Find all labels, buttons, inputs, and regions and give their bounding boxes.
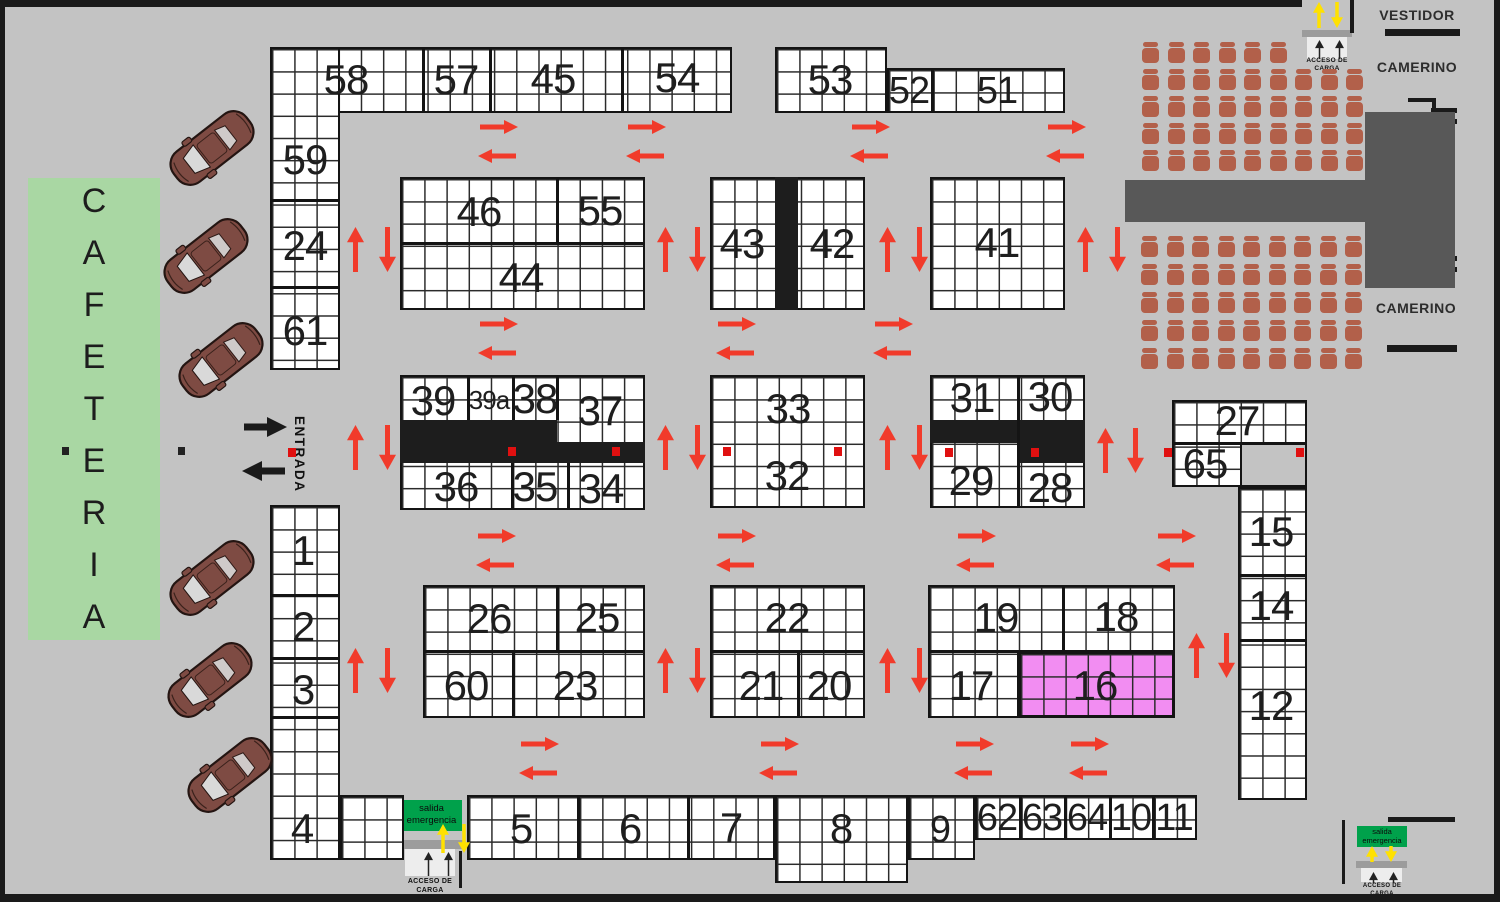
arrow-up-icon <box>347 227 364 272</box>
booth-divider <box>774 795 777 860</box>
arrow-up-icon <box>1097 428 1114 473</box>
arrow-left-icon <box>1046 149 1084 163</box>
chair-icon <box>1192 236 1209 257</box>
booth-divider <box>1017 651 1020 718</box>
wall-block <box>557 442 645 463</box>
chair-icon <box>1218 348 1235 369</box>
arrow-down-icon <box>911 425 928 470</box>
wall-segment <box>0 894 1500 902</box>
chair-icon <box>1192 292 1209 313</box>
arrow-up-icon <box>1188 633 1205 678</box>
booth-label-26: 26 <box>467 598 512 640</box>
cafeteria-letter: A <box>83 598 106 637</box>
pillar-marker-dark <box>62 447 69 455</box>
booth-label-60: 60 <box>444 665 489 707</box>
chair-icon <box>1218 292 1235 313</box>
booth-label-59: 59 <box>283 139 328 181</box>
chair-icon <box>1192 264 1209 285</box>
loading-dock-text-left: ACCESO DE CARGA <box>383 877 477 895</box>
arrow-down-icon <box>689 425 706 470</box>
booth-label-42: 42 <box>810 223 855 265</box>
chair-icon <box>1168 150 1185 171</box>
pillar-marker <box>612 447 620 456</box>
ramp-arrow-up-icon <box>1389 870 1398 881</box>
chair-icon <box>1218 236 1235 257</box>
arrow-down-icon <box>689 648 706 693</box>
chair-icon <box>1219 123 1236 144</box>
cafeteria-letter: T <box>84 390 105 429</box>
booth-label-57: 57 <box>434 59 479 101</box>
booth-label-10: 10 <box>1111 799 1151 837</box>
wall-segment <box>0 0 1302 7</box>
chair-icon <box>1270 123 1287 144</box>
arrow-left-icon <box>519 766 557 780</box>
pillar-marker <box>288 448 296 457</box>
arrow-up-icon <box>347 648 364 693</box>
booth-divider <box>270 657 340 660</box>
chair-icon <box>1345 292 1362 313</box>
booth-label-28: 28 <box>1028 467 1073 509</box>
chair-icon <box>1244 69 1261 90</box>
booth-divider <box>556 585 559 651</box>
booth-divider <box>621 47 624 113</box>
booth-label-37: 37 <box>578 390 623 432</box>
chair-icon <box>1270 42 1287 63</box>
booth-label-38: 38 <box>513 378 558 420</box>
cafeteria-letter: A <box>83 234 106 273</box>
chair-icon <box>1141 348 1158 369</box>
arrow-up-icon <box>657 648 674 693</box>
arrow-up-icon <box>657 425 674 470</box>
chair-icon <box>1243 264 1260 285</box>
arrow-down-icon <box>1127 428 1144 473</box>
booth-divider <box>928 650 1175 653</box>
arrow-left-icon <box>850 149 888 163</box>
arrow-right-icon <box>1048 120 1086 134</box>
booth-label-63: 63 <box>1022 799 1062 837</box>
exit-arrow-down-icon <box>1331 2 1343 28</box>
booth-label-12: 12 <box>1249 685 1294 727</box>
emergency-exit-right-line1: salida <box>1357 827 1407 836</box>
chair-icon <box>1320 320 1337 341</box>
chair-icon <box>1167 236 1184 257</box>
arrow-left-icon <box>956 558 994 572</box>
booth-label-41: 41 <box>975 222 1020 264</box>
ramp-arrow-up-icon <box>1335 40 1344 59</box>
chair-icon <box>1270 96 1287 117</box>
booth-divider <box>1152 795 1155 840</box>
chair-icon <box>1321 96 1338 117</box>
booth-label-20: 20 <box>807 665 852 707</box>
booth-divider <box>687 795 690 860</box>
loading-dock-bar-right <box>1356 861 1407 868</box>
arrow-left-icon <box>626 149 664 163</box>
chair-icon <box>1142 69 1159 90</box>
booth-label-6: 6 <box>619 808 641 850</box>
chair-icon <box>1321 123 1338 144</box>
exhibition-floor-plan: CAFETERIA ENTRADA VESTIDOR CAMERINO CAME… <box>0 0 1500 902</box>
chair-icon <box>1193 123 1210 144</box>
arrow-left-icon <box>1156 558 1194 572</box>
booth-divider <box>270 199 340 202</box>
booth-label-18: 18 <box>1094 596 1139 638</box>
arrow-right-icon <box>1071 737 1109 751</box>
arrow-left-icon <box>954 766 992 780</box>
loading-dock-bar-top <box>1302 30 1352 37</box>
ramp-arrow-up-icon <box>444 852 453 876</box>
chair-icon <box>1345 320 1362 341</box>
chair-icon <box>1193 42 1210 63</box>
booth-divider <box>512 651 515 718</box>
chair-icon <box>1192 348 1209 369</box>
booth-grid-block <box>340 795 404 860</box>
arrow-right-icon <box>761 737 799 751</box>
loading-dock-left-line1: ACCESO DE <box>383 877 477 886</box>
wall-segment <box>1387 345 1457 352</box>
chair-icon <box>1244 42 1261 63</box>
booth-label-16: 16 <box>1073 665 1118 707</box>
booth-divider <box>270 716 340 719</box>
chair-icon <box>1269 320 1286 341</box>
chair-icon <box>1320 348 1337 369</box>
arrow-right-icon <box>958 529 996 543</box>
booth-label-21: 21 <box>739 665 784 707</box>
chair-icon <box>1346 123 1363 144</box>
booth-label-36: 36 <box>434 466 479 508</box>
camerino-top-label: CAMERINO <box>1377 59 1457 75</box>
booth-label-23: 23 <box>553 665 598 707</box>
wall-segment <box>0 0 5 902</box>
chair-icon <box>1294 320 1311 341</box>
booth-divider <box>556 177 559 243</box>
arrow-down-icon <box>379 648 396 693</box>
arrow-down-icon <box>689 227 706 272</box>
chair-icon <box>1168 69 1185 90</box>
booth-label-34: 34 <box>579 468 624 510</box>
arrow-up-icon <box>657 227 674 272</box>
booth-label-44: 44 <box>499 257 544 299</box>
booth-divider <box>907 795 910 860</box>
chair-icon <box>1141 320 1158 341</box>
chair-icon <box>1168 42 1185 63</box>
chair-icon <box>1294 292 1311 313</box>
arrow-right-icon <box>875 317 913 331</box>
chair-icon <box>1269 348 1286 369</box>
loading-dock-bar-left <box>400 840 463 849</box>
chair-icon <box>1320 292 1337 313</box>
booth-label-14: 14 <box>1249 585 1294 627</box>
arrow-left-icon <box>716 346 754 360</box>
booth-divider <box>931 68 934 113</box>
chair-icon <box>1295 150 1312 171</box>
chair-icon <box>1218 320 1235 341</box>
wall-segment <box>1350 0 1354 33</box>
arrow-down-icon <box>1218 633 1235 678</box>
wall-segment <box>1385 29 1460 36</box>
cafeteria-letter: C <box>82 182 107 221</box>
booth-label-2: 2 <box>292 606 314 648</box>
chair-icon <box>1168 96 1185 117</box>
booth-divider <box>710 650 865 653</box>
booth-label-1: 1 <box>292 530 314 572</box>
chair-icon <box>1243 292 1260 313</box>
booth-label-15: 15 <box>1249 511 1294 553</box>
chair-icon <box>1295 123 1312 144</box>
chair-icon <box>1218 264 1235 285</box>
entrance-arrow-left-icon <box>242 461 285 481</box>
chair-icon <box>1321 69 1338 90</box>
emergency-exit-line2: emergencia <box>401 815 462 827</box>
pillar-marker <box>508 447 516 456</box>
arrow-left-icon <box>478 346 516 360</box>
cafeteria-letter: F <box>84 286 105 325</box>
booth-label-58: 58 <box>324 59 369 101</box>
chair-icon <box>1243 320 1260 341</box>
arrow-right-icon <box>480 120 518 134</box>
stage-platform <box>1365 112 1455 288</box>
booth-label-27: 27 <box>1215 400 1260 442</box>
booth-label-24: 24 <box>283 225 328 267</box>
arrow-right-icon <box>478 529 516 543</box>
arrow-left-icon <box>716 558 754 572</box>
chair-icon <box>1142 150 1159 171</box>
car-icon <box>153 208 258 305</box>
booth-divider <box>270 594 340 597</box>
arrow-up-icon <box>879 227 896 272</box>
booth-label-31: 31 <box>950 377 995 419</box>
booth-label-39: 39 <box>411 380 456 422</box>
vestidor-label: VESTIDOR <box>1379 7 1455 23</box>
loading-dock-right-line1: ACCESO DE <box>1347 883 1417 891</box>
booth-label-45: 45 <box>531 58 576 100</box>
booth-divider <box>797 651 800 718</box>
cafeteria-letter: E <box>83 442 106 481</box>
chair-icon <box>1243 236 1260 257</box>
camerino-bottom-label: CAMERINO <box>1376 300 1456 316</box>
chair-icon <box>1193 69 1210 90</box>
booth-divider <box>1238 639 1307 642</box>
car-icon <box>159 100 264 197</box>
chair-icon <box>1244 123 1261 144</box>
chair-icon <box>1168 123 1185 144</box>
arrow-right-icon <box>956 737 994 751</box>
chair-icon <box>1141 264 1158 285</box>
booth-label-39a: 39a <box>469 387 509 413</box>
chair-icon <box>1270 69 1287 90</box>
chair-icon <box>1269 292 1286 313</box>
emergency-exit-line1: salida <box>401 803 462 815</box>
cafeteria-letter: I <box>89 546 98 585</box>
chair-icon <box>1269 236 1286 257</box>
booth-divider <box>423 650 645 653</box>
arrow-up-icon <box>347 425 364 470</box>
booth-divider <box>1062 585 1065 651</box>
arrow-left-icon <box>1069 766 1107 780</box>
chair-icon <box>1219 69 1236 90</box>
arrow-down-icon <box>911 648 928 693</box>
arrow-right-icon <box>628 120 666 134</box>
pillar-marker <box>1031 448 1039 457</box>
wall-segment <box>1342 820 1345 884</box>
wall-segment <box>1494 0 1500 902</box>
chair-icon <box>1321 150 1338 171</box>
pillar-marker-dark <box>178 447 185 455</box>
booth-label-5: 5 <box>510 808 532 850</box>
stage-runway <box>1125 180 1365 222</box>
wall-segment <box>1388 817 1455 822</box>
chair-icon <box>1142 42 1159 63</box>
arrow-right-icon <box>718 317 756 331</box>
arrow-down-icon <box>1109 227 1126 272</box>
chair-icon <box>1244 150 1261 171</box>
arrow-right-icon <box>480 317 518 331</box>
car-icon <box>157 632 262 729</box>
booth-label-30: 30 <box>1028 376 1073 418</box>
exit-arrow-down-icon <box>1385 846 1397 862</box>
booth-label-17: 17 <box>949 665 994 707</box>
booth-label-29: 29 <box>949 460 994 502</box>
arrow-right-icon <box>521 737 559 751</box>
arrow-up-icon <box>1077 227 1094 272</box>
chair-icon <box>1141 236 1158 257</box>
arrow-right-icon <box>852 120 890 134</box>
chair-icon <box>1294 348 1311 369</box>
chair-icon <box>1345 236 1362 257</box>
booth-label-52: 52 <box>889 72 929 110</box>
chair-icon <box>1294 264 1311 285</box>
ramp-arrow-up-icon <box>1369 870 1378 881</box>
loading-dock-text-line1: ACCESO DE <box>1290 57 1364 65</box>
chair-icon <box>1320 264 1337 285</box>
booth-label-4: 4 <box>291 808 313 850</box>
wall-block <box>775 177 798 310</box>
arrow-up-icon <box>879 425 896 470</box>
arrow-left-icon <box>476 558 514 572</box>
chair-icon <box>1167 348 1184 369</box>
chair-icon <box>1243 348 1260 369</box>
chair-icon <box>1167 264 1184 285</box>
booth-label-32: 32 <box>765 455 810 497</box>
chair-icon <box>1346 96 1363 117</box>
chair-icon <box>1269 264 1286 285</box>
booth-label-55: 55 <box>578 190 623 232</box>
booth-divider <box>567 463 570 510</box>
arrow-down-icon <box>379 425 396 470</box>
entrance-arrow-right-icon <box>244 417 287 437</box>
cafeteria-letter: R <box>82 494 107 533</box>
chair-icon <box>1320 236 1337 257</box>
chair-icon <box>1142 123 1159 144</box>
car-icon <box>177 727 282 824</box>
booth-label-61: 61 <box>283 310 328 352</box>
emergency-exit-sign-left: salida emergencia <box>401 800 462 831</box>
chair-icon <box>1193 150 1210 171</box>
chair-icon <box>1346 150 1363 171</box>
booth-label-62: 62 <box>977 799 1017 837</box>
arrow-left-icon <box>478 149 516 163</box>
exit-arrow-down-icon <box>458 824 470 853</box>
chair-icon <box>1346 69 1363 90</box>
ramp-arrow-up-icon <box>1315 40 1324 59</box>
pillar-marker <box>723 447 731 456</box>
emergency-exit-right-line2: emergencia <box>1357 836 1407 845</box>
arrow-up-icon <box>879 648 896 693</box>
car-icon <box>168 312 273 409</box>
arrow-left-icon <box>873 346 911 360</box>
emergency-exit-sign-right: salida emergencia <box>1357 826 1407 847</box>
booth-label-35: 35 <box>513 466 558 508</box>
chair-icon <box>1294 236 1311 257</box>
exit-arrow-up-icon <box>437 824 449 853</box>
pillar-marker <box>945 448 953 457</box>
chair-icon <box>1219 96 1236 117</box>
exit-arrow-up-icon <box>1366 846 1378 862</box>
booth-label-19: 19 <box>974 597 1019 639</box>
arrow-left-icon <box>759 766 797 780</box>
wall-block <box>1018 443 1085 463</box>
chair-icon <box>1142 96 1159 117</box>
arrow-down-icon <box>911 227 928 272</box>
arrow-right-icon <box>1158 529 1196 543</box>
exit-arrow-up-icon <box>1313 2 1325 28</box>
chair-icon <box>1295 69 1312 90</box>
chair-icon <box>1167 292 1184 313</box>
booth-divider <box>489 47 492 113</box>
wall-block <box>400 420 557 463</box>
chair-icon <box>1295 96 1312 117</box>
booth-label-53: 53 <box>808 59 853 101</box>
booth-label-7: 7 <box>720 807 742 849</box>
booth-label-8: 8 <box>830 808 852 850</box>
booth-divider <box>1238 574 1307 577</box>
ramp-arrow-up-icon <box>424 852 433 876</box>
booth-label-3: 3 <box>292 669 314 711</box>
booth-divider <box>400 242 645 245</box>
booth-divider <box>422 47 425 113</box>
arrow-right-icon <box>718 529 756 543</box>
chair-icon <box>1193 96 1210 117</box>
cafeteria-area: CAFETERIA <box>28 178 160 640</box>
cafeteria-letter: E <box>83 338 106 377</box>
booth-label-65: 65 <box>1183 443 1228 485</box>
booth-divider <box>577 795 580 860</box>
booth-label-33: 33 <box>766 388 811 430</box>
booth-label-51: 51 <box>977 72 1017 110</box>
chair-icon <box>1345 264 1362 285</box>
chair-icon <box>1167 320 1184 341</box>
pillar-marker <box>1296 448 1304 457</box>
chair-icon <box>1192 320 1209 341</box>
chair-icon <box>1219 42 1236 63</box>
car-icon <box>159 530 264 627</box>
booth-label-9: 9 <box>930 811 950 849</box>
booth-label-11: 11 <box>1155 799 1192 837</box>
booth-divider <box>1017 375 1020 508</box>
wall-segment <box>459 851 462 888</box>
chair-icon <box>1270 150 1287 171</box>
booth-label-43: 43 <box>720 223 765 265</box>
chair-icon <box>1244 96 1261 117</box>
booth-divider <box>270 286 340 289</box>
booth-label-46: 46 <box>457 191 502 233</box>
chair-icon <box>1141 292 1158 313</box>
arrow-down-icon <box>379 227 396 272</box>
chair-icon <box>1345 348 1362 369</box>
pillar-marker <box>834 447 842 456</box>
booth-label-54: 54 <box>655 57 700 99</box>
booth-label-64: 64 <box>1067 799 1107 837</box>
chair-icon <box>1219 150 1236 171</box>
